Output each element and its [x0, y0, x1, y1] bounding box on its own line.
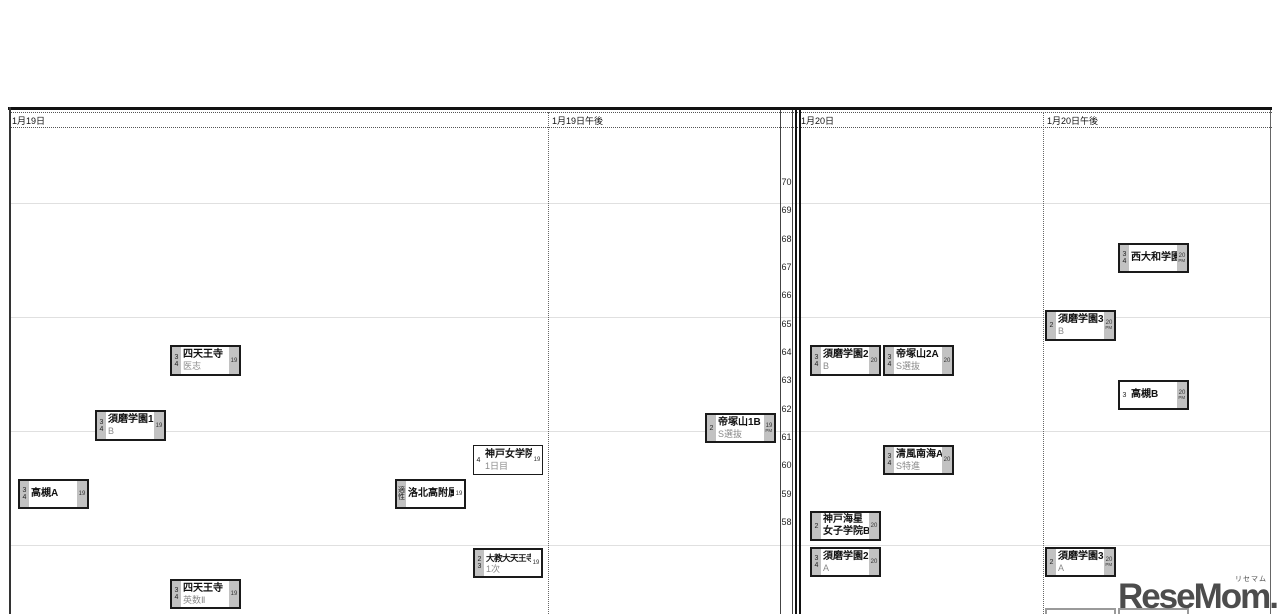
school-box-suma-gakuen-2b: 34須磨学園2B20: [810, 345, 881, 376]
column-divider-am-pm-19: [548, 112, 550, 614]
course-name: S特進: [896, 461, 940, 472]
subject-count-strip: 2: [1047, 312, 1056, 339]
school-box-shitennoji-ishi: 34四天王寺医志19: [170, 345, 241, 376]
axis-tick-58: 58: [780, 517, 793, 527]
school-box-nishiyamato-gakuen: 34西大和学園20PM: [1118, 243, 1189, 273]
exam-date-strip: 20PM: [1104, 549, 1114, 575]
school-name: 洛北高附属: [408, 488, 452, 500]
subject-count-strip: 2: [812, 513, 821, 539]
gridline: [10, 203, 1270, 204]
exam-date: 20: [871, 559, 878, 565]
axis-tick-65: 65: [780, 319, 793, 329]
school-name: 西大和学園: [1131, 252, 1175, 264]
exam-date: 19: [534, 457, 541, 463]
school-box-body: 須磨学園2A: [821, 549, 869, 575]
resemom-logo-ruby: リセマム: [1235, 576, 1267, 583]
school-box-seifu-nankai-a: 34清風南海AS特進20: [883, 445, 954, 475]
subject-count: 2: [710, 425, 714, 432]
subject-count-strip: 34: [885, 447, 894, 473]
school-box-body: 帝塚山2AS選抜: [894, 347, 942, 374]
exam-date-strip: 20: [942, 347, 952, 374]
exam-date-strip: 20: [869, 513, 879, 539]
subject-count: 3: [1123, 251, 1127, 258]
chart-right-border: [1270, 110, 1271, 614]
school-name: 神戸海星: [823, 514, 867, 526]
school-name: 須磨学園1: [108, 414, 152, 426]
school-name: 高槻B: [1131, 389, 1175, 401]
school-name: 須磨学園2: [823, 349, 867, 361]
subject-count: 4: [477, 457, 481, 464]
school-box-rakuhoku-kofuzoku: 適性洛北高附属19: [395, 479, 466, 509]
subject-count-strip: 34: [172, 347, 181, 374]
school-box-body: 帝塚山1BS選抜: [716, 415, 764, 441]
course-name: B: [823, 361, 867, 372]
axis-tick-70: 70: [780, 177, 793, 187]
course-name: 医志: [183, 361, 227, 372]
school-box-suma-gakuen-1b: 34須磨学園1B19: [95, 410, 166, 441]
axis-tick-69: 69: [780, 205, 793, 215]
school-name: 清風南海A: [896, 449, 940, 461]
subject-count: 4: [888, 460, 892, 467]
exam-date-strip: 20: [869, 347, 879, 374]
subject-count: 3: [478, 563, 482, 570]
exam-date-strip: 19: [77, 481, 87, 507]
school-box-suma-gakuen-3a: 2須磨学園3A20PM: [1045, 547, 1116, 577]
course-name: A: [1058, 563, 1102, 574]
subject-count: 4: [815, 361, 819, 368]
exam-date-strip: 19PM: [764, 415, 774, 441]
school-box-body: 須磨学園2B: [821, 347, 869, 374]
exam-date: 20: [871, 358, 878, 364]
school-name: 須磨学園3: [1058, 314, 1102, 326]
exam-date-strip: 19: [229, 347, 239, 374]
school-box-tezukayama-2a: 34帝塚山2AS選抜20: [883, 345, 954, 376]
column-header-jan19: 1月19日: [12, 114, 45, 127]
school-box-daikyodai-tennoji: 23大教大天王寺1次19: [473, 548, 543, 578]
subject-count: 3: [100, 419, 104, 426]
school-box-body: 高槻B: [1129, 382, 1177, 408]
subject-count: 4: [175, 361, 179, 368]
exam-date: 19: [456, 491, 463, 497]
course-name: S選抜: [718, 429, 762, 440]
axis-tick-68: 68: [780, 234, 793, 244]
subject-count: 4: [175, 594, 179, 601]
school-name: 四天王寺: [183, 349, 227, 361]
gridline: [10, 431, 1270, 432]
subject-count-strip: 34: [20, 481, 29, 507]
school-box-body: 四天王寺医志: [181, 347, 229, 374]
school-box-kobe-jogakuin: 4神戸女学院1日目19: [473, 445, 543, 475]
subject-count: 3: [23, 487, 27, 494]
subject-count: 3: [888, 354, 892, 361]
column-header-jan20pm: 1月20日午後: [1047, 114, 1098, 127]
exam-date: 19: [156, 423, 163, 429]
subject-count: 2: [815, 523, 819, 530]
page-divider-line-a: [795, 110, 797, 614]
school-box-body: 神戸海星女子学院B: [821, 513, 869, 539]
exam-schedule-chart: 1月19日1月19日午後1月20日1月20日午後 706968676665646…: [0, 0, 1280, 614]
subject-count-strip: 2: [1047, 549, 1056, 575]
subject-count: 3: [175, 587, 179, 594]
course-name: 女子学院B: [823, 526, 867, 538]
subject-count: 3: [815, 555, 819, 562]
axis-tick-62: 62: [780, 404, 793, 414]
exam-date: 19: [231, 358, 238, 364]
school-box-body: 神戸女学院1日目: [483, 446, 532, 474]
pm-indicator: PM: [766, 429, 773, 434]
exam-date: 19: [231, 591, 238, 597]
school-box-body: 西大和学園: [1129, 245, 1177, 271]
exam-date-strip: 19: [454, 481, 464, 507]
exam-date-strip: 20PM: [1177, 382, 1187, 408]
school-box-shitennoji-eisu2: 34四天王寺英数Ⅱ19: [170, 579, 241, 609]
subject-count: 4: [100, 426, 104, 433]
exam-date-strip: 19: [531, 550, 541, 576]
axis-tick-61: 61: [780, 432, 793, 442]
subject-count: 性: [398, 494, 405, 501]
subject-count-strip: 23: [475, 550, 484, 576]
school-box-body: 四天王寺英数Ⅱ: [181, 581, 229, 607]
pm-indicator: PM: [1106, 563, 1113, 568]
exam-date-strip: 20PM: [1104, 312, 1114, 339]
school-box-body: 須磨学園1B: [106, 412, 154, 439]
course-name: 1日目: [485, 461, 530, 472]
school-box-kobe-kaisei: 2神戸海星女子学院B20: [810, 511, 881, 541]
subject-count: 4: [1123, 258, 1127, 265]
subject-count-strip: 3: [1120, 382, 1129, 408]
subject-count: 3: [888, 453, 892, 460]
exam-date-strip: 19: [532, 446, 542, 474]
school-box-body: 洛北高附属: [406, 481, 454, 507]
exam-date: 20: [944, 358, 951, 364]
subject-count-strip: 2: [707, 415, 716, 441]
pm-indicator: PM: [1179, 259, 1186, 264]
cutoff-school-box: [1045, 608, 1116, 614]
subject-count: 2: [478, 556, 482, 563]
school-box-suma-gakuen-2a: 34須磨学園2A20: [810, 547, 881, 577]
course-name: A: [823, 563, 867, 574]
subject-count-strip: 4: [474, 446, 483, 474]
pm-indicator: PM: [1179, 396, 1186, 401]
axis-tick-59: 59: [780, 489, 793, 499]
course-name: S選抜: [896, 361, 940, 372]
school-box-body: 高槻A: [29, 481, 77, 507]
subject-count: 3: [1123, 392, 1127, 399]
pm-indicator: PM: [1106, 326, 1113, 331]
column-header-jan19pm: 1月19日午後: [552, 114, 603, 127]
school-name: 須磨学園2: [823, 551, 867, 563]
school-name: 帝塚山2A: [896, 349, 940, 361]
resemom-logo: リセマム ReseMom.: [1118, 579, 1277, 614]
axis-tick-67: 67: [780, 262, 793, 272]
subject-count: 2: [1050, 559, 1054, 566]
axis-tick-63: 63: [780, 375, 793, 385]
axis-tick-60: 60: [780, 460, 793, 470]
column-divider-am-pm-20: [1043, 112, 1045, 614]
school-name: 須磨学園3: [1058, 551, 1102, 563]
school-name: 神戸女学院: [485, 449, 530, 461]
subject-count: 4: [888, 361, 892, 368]
subject-count: 2: [1050, 322, 1054, 329]
school-box-body: 須磨学園3A: [1056, 549, 1104, 575]
school-box-suma-gakuen-3b: 2須磨学園3B20PM: [1045, 310, 1116, 341]
school-box-tezukayama-1b: 2帝塚山1BS選抜19PM: [705, 413, 776, 443]
school-name: 帝塚山1B: [718, 417, 762, 429]
exam-date-strip: 19: [154, 412, 164, 439]
subject-count-strip: 34: [172, 581, 181, 607]
subject-count-strip: 適性: [397, 481, 406, 507]
subject-count-strip: 34: [97, 412, 106, 439]
exam-date-strip: 19: [229, 581, 239, 607]
course-name: B: [108, 426, 152, 437]
subject-count: 3: [815, 354, 819, 361]
subject-count: 4: [815, 562, 819, 569]
subject-count-strip: 34: [1120, 245, 1129, 271]
school-box-body: 大教大天王寺1次: [484, 550, 531, 576]
subject-count: 3: [175, 354, 179, 361]
axis-tick-64: 64: [780, 347, 793, 357]
page-divider-line-b: [799, 110, 801, 614]
gridline: [10, 545, 1270, 546]
exam-date: 20: [944, 457, 951, 463]
school-name: 四天王寺: [183, 583, 227, 595]
exam-date: 19: [79, 491, 86, 497]
subject-count-strip: 34: [885, 347, 894, 374]
axis-tick-66: 66: [780, 290, 793, 300]
chart-top-border: [8, 107, 1272, 110]
subject-count-strip: 34: [812, 347, 821, 374]
school-name: 高槻A: [31, 488, 75, 500]
exam-date: 19: [533, 560, 540, 566]
exam-date-strip: 20: [942, 447, 952, 473]
course-name: 1次: [486, 564, 529, 575]
subject-count: 4: [23, 494, 27, 501]
exam-date: 20: [871, 523, 878, 529]
exam-date-strip: 20: [869, 549, 879, 575]
subject-count-strip: 34: [812, 549, 821, 575]
school-box-takatsuki-b: 3高槻B20PM: [1118, 380, 1189, 410]
school-box-takatsuki-a: 34高槻A19: [18, 479, 89, 509]
school-box-body: 清風南海AS特進: [894, 447, 942, 473]
course-name: B: [1058, 326, 1102, 337]
course-name: 英数Ⅱ: [183, 595, 227, 606]
column-header-jan20: 1月20日: [801, 114, 834, 127]
school-box-body: 須磨学園3B: [1056, 312, 1104, 339]
school-name: 大教大天王寺: [486, 552, 529, 564]
exam-date-strip: 20PM: [1177, 245, 1187, 271]
subject-count: 適: [398, 487, 405, 494]
chart-left-border: [9, 107, 11, 614]
